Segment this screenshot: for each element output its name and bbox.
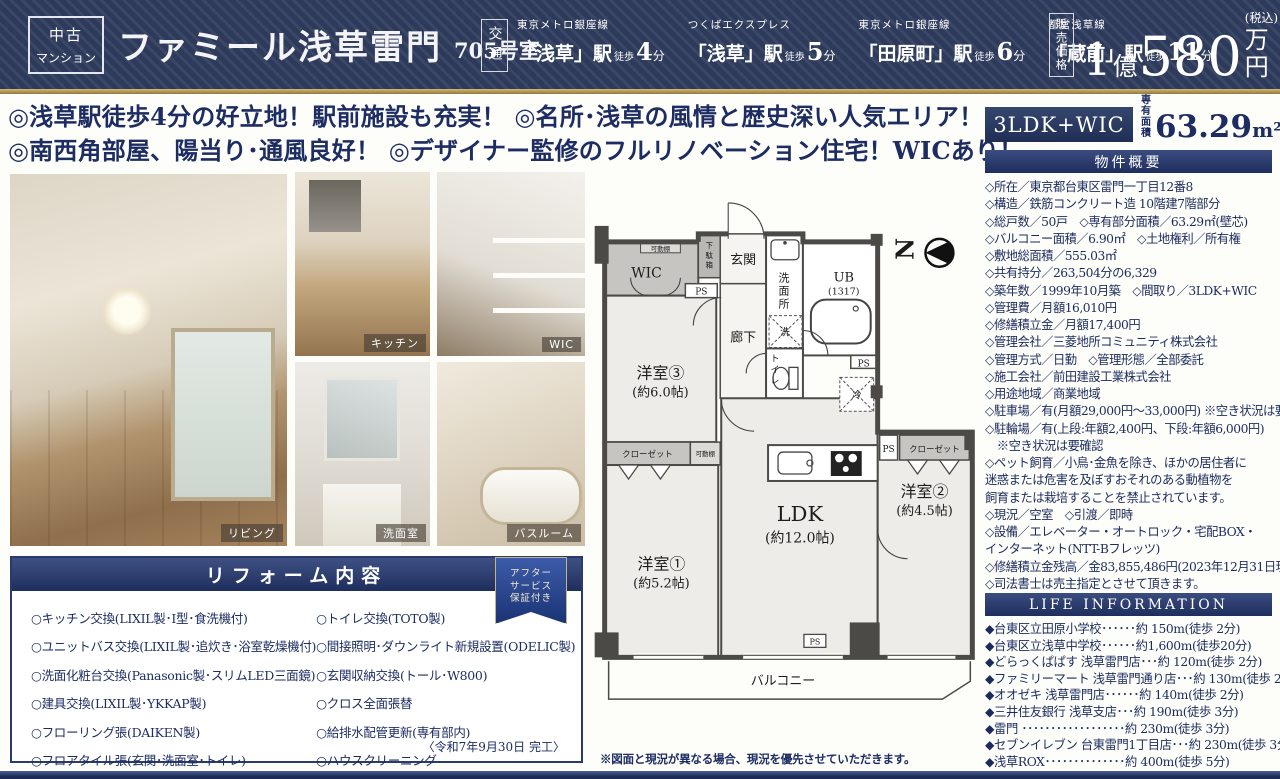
overview-line: ◇築年数／1999年10月築 ◇間取り／3LDK+WIC (985, 283, 1280, 300)
station-name: 「田原町」駅 (858, 39, 972, 66)
overview-line: ◇共有持分／263,504分の6,329 (985, 265, 1280, 282)
photo-bathroom: バスルーム (437, 362, 585, 546)
ribbon-line3: 保証付き (510, 593, 552, 606)
label-corridor: 廊下 (730, 329, 756, 345)
price-tax-note: (税込) (1245, 10, 1278, 27)
svg-text:イ: イ (771, 365, 780, 375)
overview-line: 飼育または栽培することを禁止されています。 (985, 490, 1280, 507)
label-ps3: PS (883, 445, 895, 455)
walk-minutes: 4 (636, 37, 653, 66)
label-toilet: ト (771, 354, 780, 364)
overview-line: ◇施工会社／前田建設工業株式会社 (985, 369, 1280, 386)
life-line: ◆台東区立浅草中学校･･････約1,600m(徒歩20分) (985, 638, 1280, 655)
area-unit: m² (1252, 117, 1280, 143)
svg-text:箱: 箱 (706, 260, 714, 270)
overview-line: ◇駐車場／有(月額29,000円～33,000円) ※空き状況は要確認 (985, 403, 1280, 420)
label-ps1: PS (695, 288, 707, 298)
overview-line: ◇総戸数／50戸 ◇専有部分面積／63.29㎡(壁芯) (985, 214, 1280, 231)
north-letter: N (892, 238, 920, 260)
floor-plan-disclaimer: ※図面と現況が異なる場合、現況を優先させていただきます。 (600, 751, 915, 767)
label-closet1: クローゼット (622, 449, 673, 459)
rail-line-name: つくばエクスプレス (688, 17, 836, 32)
label-ub-size: (1317) (828, 287, 859, 298)
overview-line: ◇構造／鉄筋コンクリート造 10階建7階部分 (985, 196, 1280, 213)
overview-line: ※空き状況は要確認 (985, 438, 1280, 455)
floor-plan-svg: N 可動棚 WIC 下 駄 箱 玄関 PS 洗 面 所 洗 UB (1317) … (588, 196, 980, 746)
ceiling-light (102, 286, 152, 336)
overview-line: ◇司法書士は売主指定とさせて頂きます。 (985, 576, 1280, 593)
label-shoe-box: 下 (706, 241, 714, 250)
life-line: ◆オオゼキ 浅草雷門店･･････約 140m(徒歩 2分) (985, 687, 1280, 704)
header: 中古 マンション ファミール浅草雷門 705号室 交通 東京メトロ銀座線 「浅草… (0, 0, 1280, 89)
minutes-unit: 分 (1013, 47, 1025, 64)
reform-item: ○ユニットバス交換(LIXIL製･追炊き･浴室乾燥機付) (31, 632, 316, 661)
ribbon-line2: サービス (510, 581, 552, 594)
reform-item: ○玄関収納交換(トール･W800) (316, 660, 575, 689)
station-entry: つくばエクスプレス 「浅草」駅 徒歩 5 分 (688, 17, 836, 66)
reform-item: ○間接照明･ダウンライト新規設置(ODELIC製) (316, 632, 575, 661)
overview-line: ◇敷地総面積／555.03㎡ (985, 248, 1280, 265)
property-type-badge: 中古 マンション (28, 16, 104, 74)
overview-line: ◇設備／エレベーター・オートロック・宅配BOX・ (985, 524, 1280, 541)
label-room3: 洋室③ (637, 363, 685, 382)
station-name: 「浅草」駅 (517, 39, 612, 66)
photo-kitchen: キッチン (295, 172, 430, 356)
photo-label-bathroom: バスルーム (507, 524, 581, 542)
property-title: ファミール浅草雷門 (118, 20, 442, 69)
area-label1: 専有 (1141, 95, 1151, 117)
label-washroom: 洗 (779, 272, 790, 285)
price-oku-unit: 億 (1113, 51, 1138, 82)
photo-living: リビング (10, 174, 287, 546)
gold-divider (0, 89, 1280, 94)
label-wic: WIC (631, 266, 662, 282)
label-ldk: LDK (777, 502, 824, 526)
area-label2: 面積 (1141, 117, 1151, 139)
overview-line: ◇駐輪場／有(上段:年額2,400円、下段:年額6,000円) (985, 421, 1280, 438)
label-movable-shelf-1: 可動棚 (651, 244, 670, 253)
overview-line: インターネット(NTT-Bフレッツ) (985, 541, 1280, 558)
price-label-badge: 販売価格 (1049, 13, 1074, 77)
station-entry: 東京メトロ銀座線 「浅草」駅 徒歩 4 分 (517, 17, 665, 66)
exclusive-area: 専有 面積 63.29 m² (壁芯) (1141, 106, 1280, 143)
label-room2-size: (約4.5帖) (896, 504, 953, 519)
station-entry: 東京メトロ銀座線 「田原町」駅 徒歩 6 分 (858, 17, 1025, 66)
life-info-title-bar: LIFE INFORMATION (985, 593, 1272, 616)
rail-line-name: 東京メトロ銀座線 (858, 17, 1025, 32)
photo-label-washroom: 洗面室 (376, 524, 426, 542)
walk-label: 徒歩 (974, 48, 994, 63)
overview-line: ◇管理方式／日勤 ◇管理形態／全部委託 (985, 352, 1280, 369)
label-room1-size: (約5.2帖) (633, 577, 690, 592)
overview-line: ◇バルコニー面積／6.90㎡ ◇土地権利／所有権 (985, 231, 1280, 248)
overview-title-bar: 物件概要 (985, 150, 1272, 173)
label-ldk-size: (約12.0帖) (765, 531, 835, 547)
price-oku-number: 1 (1083, 37, 1112, 82)
overview-line: ◇所在／東京都台東区雷門一丁目12番8 (985, 179, 1280, 196)
svg-text:駄: 駄 (706, 250, 714, 260)
overview-line: ◇現況／空室 ◇引渡／即時 (985, 507, 1280, 524)
layout-badge: 3LDK+WIC (985, 107, 1133, 142)
label-movable-shelf-2: 可動棚 (696, 449, 715, 458)
label-closet2: クローゼット (909, 444, 960, 454)
label-balcony: バルコニー (751, 674, 815, 689)
photo-washroom: 洗面室 (295, 362, 430, 546)
label-room2: 洋室② (901, 482, 949, 501)
svg-text:面: 面 (779, 285, 790, 298)
completion-date: 〈令和7年9月30日 完工〉 (423, 738, 565, 755)
reform-section: リフォーム内容 アフター サービス 保証付き ○キッチン交換(LIXIL製･I型… (10, 556, 583, 763)
overview-line: ◇用途地域／商業地域 (985, 386, 1280, 403)
price-man-number: 580 (1139, 31, 1242, 82)
label-room3-size: (約6.0帖) (632, 385, 689, 400)
life-line: ◆台東区立田原小学校･･････約 150m(徒歩 2分) (985, 621, 1280, 638)
label-room1: 洋室① (638, 555, 686, 574)
catch-line1: ◎浅草駅徒歩4分の好立地！駅前施設も充実！ ◎名所･浅草の風情と歴史深い人気エリ… (8, 100, 986, 134)
shelves (493, 208, 585, 337)
bottom-bar (0, 771, 1280, 779)
life-line: ◆雷門 ･･････････････････約 230m(徒歩 3分) (985, 721, 1280, 738)
overview-line: ◇管理費／月額16,010円 (985, 300, 1280, 317)
label-ps4: PS (809, 637, 820, 646)
property-overview-list: ◇所在／東京都台東区雷門一丁目12番8◇構造／鉄筋コンクリート造 10階建7階部… (985, 179, 1280, 593)
minutes-unit: 分 (653, 47, 665, 64)
station-name: 「浅草」駅 (688, 39, 783, 66)
compass-needle (925, 242, 953, 264)
bathtub (483, 470, 579, 522)
reform-list-left: ○キッチン交換(LIXIL製･I型･食洗機付)○ユニットバス交換(LIXIL製･… (31, 603, 316, 774)
photo-wic: WIC (437, 172, 585, 356)
walk-minutes: 6 (996, 37, 1013, 66)
overview-line: ◇修繕積立金／月額17,400円 (985, 317, 1280, 334)
walk-label: 徒歩 (785, 48, 805, 63)
badge-line2: マンション (36, 49, 96, 66)
price: 1 億 580 (税込) 万円 (1083, 10, 1280, 82)
overview-line: ◇ペット飼育／小鳥･金魚を除き、ほかの居住者に (985, 455, 1280, 472)
photo-label-kitchen: キッチン (364, 334, 426, 352)
reform-item: ○クロス全面張替 (316, 689, 575, 718)
catch-line2: ◎南西角部屋、陽当り･通風良好！ ◎デザイナー監修のフルリノベーション住宅！WI… (8, 134, 986, 168)
reform-item: ○キッチン交換(LIXIL製･I型･食洗機付) (31, 603, 316, 632)
photo-label-living: リビング (221, 524, 283, 542)
catch-copy: ◎浅草駅徒歩4分の好立地！駅前施設も充実！ ◎名所･浅草の風情と歴史深い人気エリ… (8, 100, 986, 168)
range-hood (309, 180, 361, 232)
reform-item: ○フローリング張(DAIKEN製) (31, 717, 316, 746)
life-information-list: ◆台東区立田原小学校･･････約 150m(徒歩 2分)◆台東区立浅草中学校･… (985, 621, 1280, 770)
mirror (327, 380, 397, 458)
title-wrap: ファミール浅草雷門 705号室 (118, 0, 540, 89)
photo-label-wic: WIC (542, 337, 581, 352)
life-line: ◆セブンイレブン 台東雷門1丁目店･･･約 230m(徒歩 3分) (985, 737, 1280, 754)
badge-line1: 中古 (49, 24, 83, 45)
walk-label: 徒歩 (614, 48, 634, 63)
ribbon-line1: アフター (510, 568, 552, 581)
rail-line-name: 東京メトロ銀座線 (517, 17, 665, 32)
reform-item: ○洗面化粧台交換(Panasonic製･スリムLED三面鏡) (31, 660, 316, 689)
area-value: 63.29 (1155, 112, 1252, 143)
svg-text:所: 所 (779, 298, 790, 311)
reform-item: ○建具交換(LIXIL製･YKKAP製) (31, 689, 316, 718)
label-entrance: 玄関 (730, 253, 756, 268)
window (175, 332, 271, 497)
overview-line: ◇管理会社／三菱地所コミュニティ株式会社 (985, 334, 1280, 351)
label-ps2: PS (858, 359, 870, 369)
access-badge: 交通 (481, 19, 508, 72)
label-ub: UB (834, 271, 854, 286)
price-man-unit: 万円 (1245, 27, 1280, 82)
life-line: ◆三井住友銀行 浅草支店･･･約 190m(徒歩 3分) (985, 704, 1280, 721)
walk-minutes: 5 (807, 37, 824, 66)
reform-item: ○フロアタイル張(玄関･洗面室･トイレ) (31, 746, 316, 775)
life-line: ◆ファミリーマート 浅草雷門通り店･･･約 130m(徒歩 2分) (985, 671, 1280, 688)
life-line: ◆浅草ROX･･････････････約 400m(徒歩 5分) (985, 754, 1280, 771)
svg-text:レ: レ (771, 376, 780, 386)
real-estate-flyer: 中古 マンション ファミール浅草雷門 705号室 交通 東京メトロ銀座線 「浅草… (0, 0, 1280, 779)
overview-line: 迷惑または危害を及ぼすおそれのある動植物を (985, 472, 1280, 489)
label-fridge: 冷 (852, 388, 862, 401)
label-washer: 洗 (780, 326, 790, 338)
life-line: ◆どらっくぱぱす 浅草雷門店･･･約 120m(徒歩 2分) (985, 654, 1280, 671)
overview-line: ◇修繕積立金残高／金83,855,486円(2023年12月31日現在) (985, 559, 1280, 576)
floor-plan: N 可動棚 WIC 下 駄 箱 玄関 PS 洗 面 所 洗 UB (1317) … (588, 196, 980, 746)
minutes-unit: 分 (823, 47, 835, 64)
